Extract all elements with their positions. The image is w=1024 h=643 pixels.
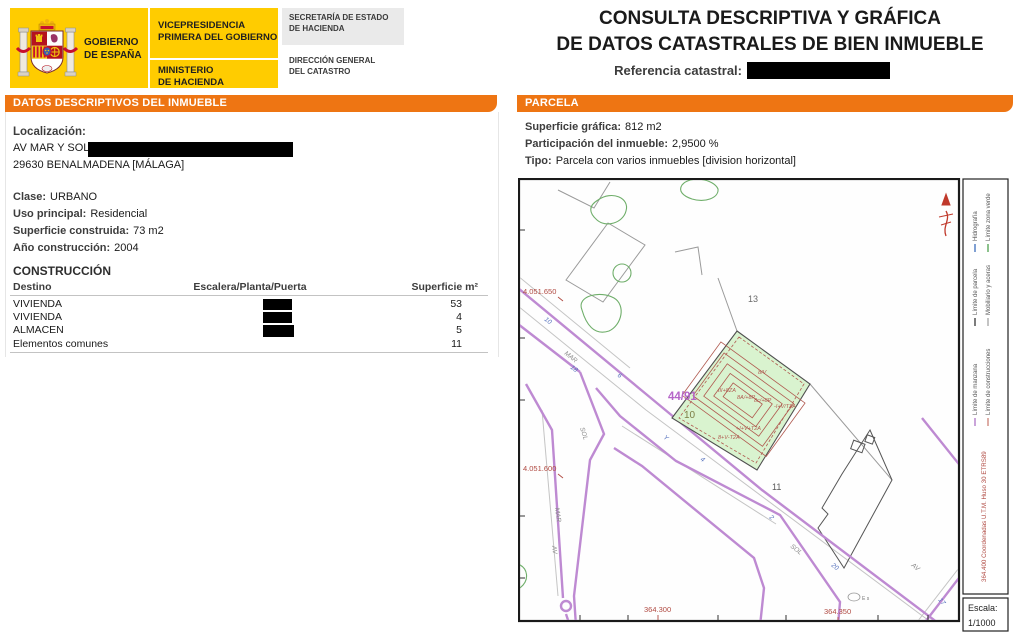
table-row-escalera-redaction	[263, 312, 292, 323]
utm-coordinates-vertical-label: 364.400 Coordenadas U.T.M. Huso 30 ETRS8…	[981, 451, 988, 582]
coord-label-left: 4.051.600	[523, 464, 556, 473]
table-header-rule	[10, 295, 488, 296]
table-row-superficie: 5	[422, 324, 462, 336]
document-title-line1: CONSULTA DESCRIPTIVA Y GRÁFICA	[530, 8, 1010, 30]
table-header-destino: Destino	[13, 281, 52, 293]
parcel-number-11: 11	[772, 482, 781, 492]
parcel-ref-label: 44/91	[668, 391, 697, 403]
header-vertical-divider	[148, 8, 150, 88]
field-superficie-grafica-label: Superficie gráfica:	[525, 121, 621, 133]
construccion-title: CONSTRUCCIÓN	[13, 264, 111, 278]
header-horizontal-divider	[150, 58, 278, 60]
legend-label-construcciones: Límite de construcciones	[986, 349, 992, 415]
field-ano-value: 2004	[114, 242, 138, 254]
table-row-destino: Elementos comunes	[13, 338, 108, 350]
field-superficie: Superficie construida:73 m2	[13, 225, 164, 237]
secretaria-estado-box: SECRETARÍA DE ESTADO DE HACIENDA	[282, 8, 404, 45]
table-row-destino: ALMACEN	[13, 324, 64, 336]
field-clase-value: URBANO	[50, 191, 97, 203]
field-ano-label: Año construcción:	[13, 242, 110, 254]
localizacion-label: Localización:	[13, 126, 86, 138]
table-row-destino: VIVIENDA	[13, 298, 62, 310]
ministerio-label: MINISTERIO DE HACIENDA	[158, 65, 224, 89]
table-row-destino: VIVIENDA	[13, 311, 62, 323]
address-redaction	[88, 142, 293, 157]
address-line1: AV MAR Y SOL	[13, 142, 89, 154]
field-superficie-label: Superficie construida:	[13, 225, 129, 237]
address-line2: 29630 BENALMADENA [MÁLAGA]	[13, 159, 184, 171]
field-clase-label: Clase:	[13, 191, 46, 203]
construction-label: 8/V	[758, 370, 768, 376]
poi-label: E s	[862, 596, 870, 602]
escala-value: 1/1000	[968, 618, 996, 628]
escala-label: Escala:	[968, 603, 998, 613]
field-ano: Año construcción:2004	[13, 242, 139, 254]
left-section-header: DATOS DESCRIPTIVOS DEL INMUEBLE	[5, 95, 497, 112]
cadastral-document: { "header": { "gobierno": "GOBIERNO\nDE …	[0, 0, 1024, 643]
field-uso: Uso principal:Residencial	[13, 208, 147, 220]
table-row-superficie: 4	[422, 311, 462, 323]
street-name-av: AV	[550, 544, 558, 555]
table-row-escalera-redaction	[263, 325, 294, 337]
legend-label-parcela: Límite de parcela	[973, 268, 979, 315]
field-participacion-value: 2,9500 %	[672, 138, 718, 150]
document-title-line2: DE DATOS CATASTRALES DE BIEN INMUEBLE	[530, 34, 1010, 56]
parcel-number-10: 10	[684, 410, 696, 421]
construction-label: III+8ZA	[718, 388, 736, 394]
table-header-escalera: Escalera/Planta/Puerta	[160, 281, 340, 293]
field-tipo: Tipo:Parcela con varios inmuebles [divis…	[525, 155, 796, 167]
field-superficie-value: 73 m2	[133, 225, 164, 237]
legend-label-manzana: Límite de manzana	[973, 363, 979, 415]
referencia-catastral-redaction	[747, 62, 890, 79]
field-superficie-grafica-value: 812 m2	[625, 121, 662, 133]
construction-label: 8c/+8P	[754, 398, 772, 404]
gobierno-de-espana-label: GOBIERNO DE ESPAÑA	[84, 37, 142, 63]
field-tipo-value: Parcela con varios inmuebles [division h…	[556, 155, 796, 167]
legend-label-mobiliario: Mobiliario y aceras	[986, 265, 992, 315]
legend-label-zona-verde: Límite zona verde	[986, 193, 992, 241]
referencia-catastral-label: Referencia catastral:	[530, 63, 742, 78]
coord-label-bottom: 364.300	[644, 605, 671, 614]
coord-label-left: 4.051.650	[523, 287, 556, 296]
coord-label-bottom: 364.350	[824, 607, 851, 616]
table-row-superficie: 11	[422, 338, 462, 350]
construction-label: 8+V-T2A	[718, 435, 740, 441]
government-header: GOBIERNO DE ESPAÑA VICEPRESIDENCIA PRIME…	[10, 8, 278, 88]
construction-label: 8A/+8P	[737, 395, 756, 401]
table-bottom-rule	[10, 352, 488, 353]
table-header-superficie: Superficie m²	[398, 281, 478, 293]
spain-coat-of-arms-icon	[16, 12, 78, 86]
direccion-general-label: DIRECCIÓN GENERAL DEL CATASTRO	[289, 56, 375, 78]
construction-label: +I+V+T2A	[736, 426, 761, 432]
field-clase: Clase:URBANO	[13, 191, 97, 203]
table-row-escalera-redaction	[263, 299, 292, 310]
vicepresidencia-label: VICEPRESIDENCIA PRIMERA DEL GOBIERNO	[158, 20, 277, 44]
right-section-header: PARCELA	[517, 95, 1013, 112]
field-uso-value: Residencial	[90, 208, 147, 220]
field-participacion-label: Participación del inmueble:	[525, 138, 668, 150]
field-participacion: Participación del inmueble:2,9500 %	[525, 138, 719, 150]
table-row-superficie: 53	[422, 298, 462, 310]
construction-label: -I+V/T2A	[774, 404, 796, 410]
field-superficie-grafica: Superficie gráfica:812 m2	[525, 121, 662, 133]
cadastral-map: 8/V III+8ZA 8A/+8P 8c/+8P -I+V/T2A +I+V+…	[518, 178, 1010, 633]
field-uso-label: Uso principal:	[13, 208, 86, 220]
field-tipo-label: Tipo:	[525, 155, 552, 167]
legend-label-hidrografia: Hidrografía	[973, 211, 979, 241]
parcel-number-13: 13	[748, 294, 758, 304]
